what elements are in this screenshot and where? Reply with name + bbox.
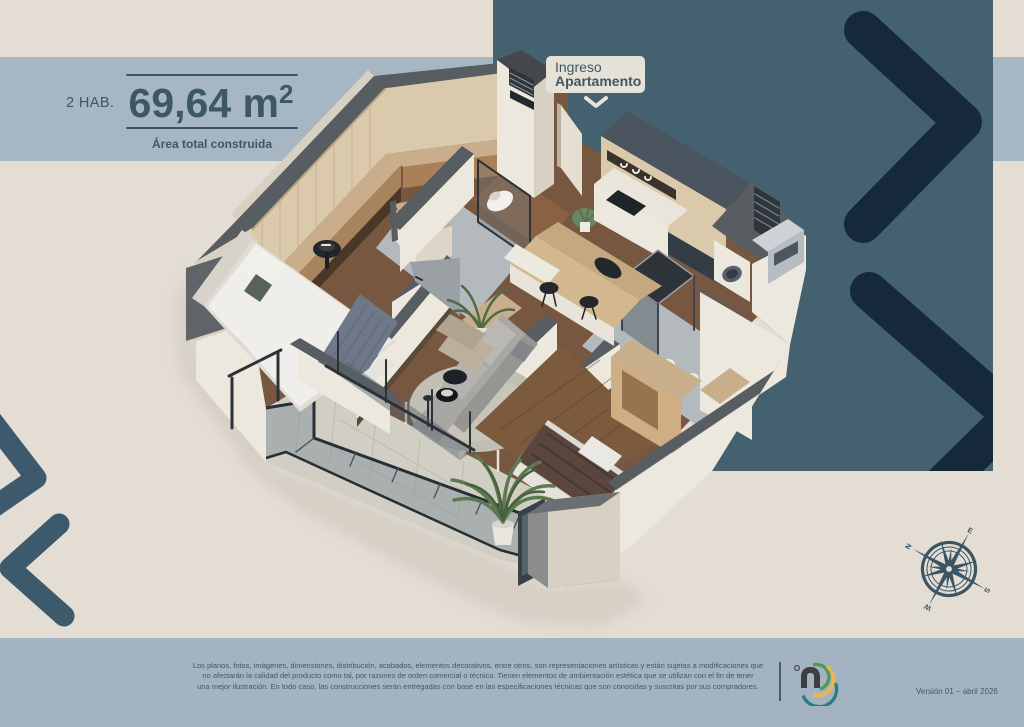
svg-text:N: N	[905, 542, 914, 551]
svg-text:E: E	[966, 525, 975, 535]
svg-text:S: S	[982, 586, 992, 595]
svg-text:W: W	[922, 601, 933, 613]
